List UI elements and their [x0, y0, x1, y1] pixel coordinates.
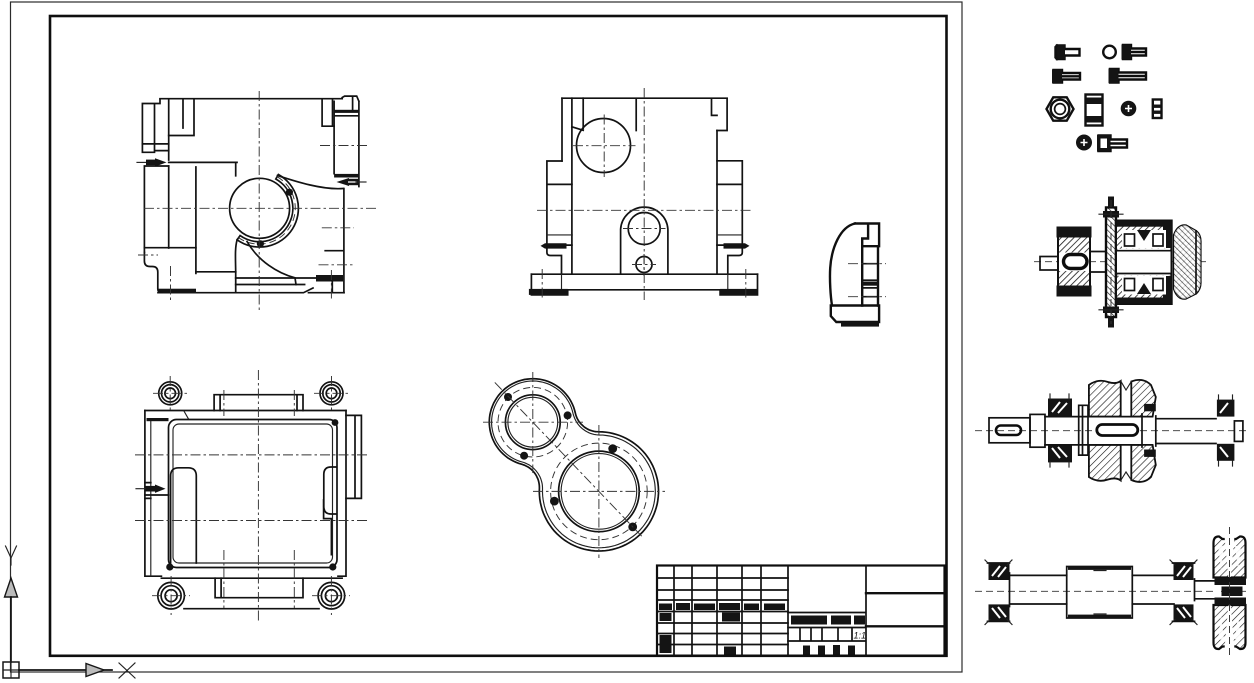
svg-text:1:1: 1:1 [854, 631, 867, 641]
